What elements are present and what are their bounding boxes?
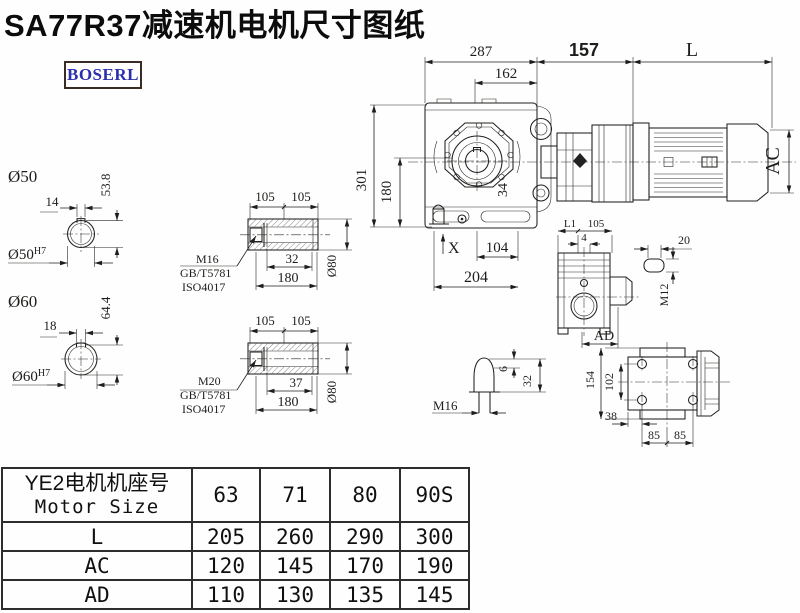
shaft60-dia-label: Ø60 [8,292,37,311]
shaft50-fit-label: Ø50H7 [8,246,46,263]
shaft50-fit-sup: H7 [34,246,46,257]
table-cell: 290 [330,522,400,551]
plug-6-label: 6 [496,366,510,372]
plug-32-label: 32 [520,375,534,387]
table-header-cn: YE2电机机座号 [3,471,191,496]
sideview-ad-label: AD [594,329,614,344]
dim-AC-label: AC [762,147,784,175]
section2-bolt-len-label: 37 [290,375,304,390]
table-col-71: 71 [260,468,330,522]
table-cell: 145 [260,551,330,580]
section2-std2-label: ISO4017 [182,402,225,416]
table-cell: 135 [330,580,400,609]
table-cell: 300 [400,522,469,551]
table-row-label: L [2,522,192,551]
dim-204-label: 204 [464,269,488,286]
sideview-l1-label: L1 [564,218,576,230]
dim-X-label: X [448,240,460,257]
shaft60-key-label: 18 [44,318,57,333]
shaft60-fit-sup: H7 [38,368,50,379]
side-view: L1 105 4 AD [556,218,640,348]
dim-104-label: 104 [486,240,509,256]
flange-38-label: 38 [605,409,617,423]
dim-287-label: 287 [470,44,493,60]
plug-detail: M16 6 32 [432,349,546,413]
table-col-63: 63 [192,468,260,522]
shaft-end-view-50: Ø50 14 53.8 Ø50H7 [8,167,123,267]
section1-dia-label: Ø80 [324,255,339,277]
table-header-cell: YE2电机机座号 Motor Size [2,468,192,522]
table-cell: 130 [260,580,330,609]
section2-len-b-label: 105 [291,313,311,328]
section1-std1-label: GB/T5781 [180,266,231,280]
hollow-shaft-section-m20: 105 105 Ø80 37 180 M20 GB/T5781 ISO4017 [180,313,352,416]
shaft60-depth-label: 64.4 [98,296,113,319]
section2-std1-label: GB/T5781 [180,388,231,402]
dim-34-label: 34 [496,183,511,197]
table-row-label: AD [2,580,192,609]
table-cell: 205 [192,522,260,551]
hollow-shaft-section-m16: 105 105 Ø80 32 180 M16 GB/T5781 ISO4017 [180,189,352,294]
table-cell: 145 [400,580,469,609]
table-cell: 190 [400,551,469,580]
plug-m16-label: M16 [433,398,458,413]
table-cell: 110 [192,580,260,609]
section1-len-b-label: 105 [291,189,311,204]
table-row-L: L 205 260 290 300 [2,522,469,551]
section2-total-label: 180 [278,395,299,410]
shaft50-depth-label: 53.8 [98,174,113,197]
section1-bolt-len-label: 32 [286,251,299,266]
shaft60-fit-label: Ø60H7 [12,368,50,385]
section2-dia-label: Ø80 [324,381,339,403]
flange-102-label: 102 [602,373,616,391]
table-header-en: Motor Size [3,496,191,519]
table-cell: 120 [192,551,260,580]
shaft50-dia-label: Ø50 [8,167,37,186]
shaft60-fit-base: Ø60 [12,369,38,385]
sideview-105-label: 105 [588,218,605,230]
table-col-80: 80 [330,468,400,522]
section1-std2-label: ISO4017 [182,280,225,294]
dim-180-label: 180 [379,181,395,204]
flange-bottom-view: 154 102 38 85 85 [583,342,732,447]
shaft50-key-label: 14 [46,194,60,209]
motor-size-table: YE2电机机座号 Motor Size 63 71 80 90S L 205 2… [1,467,470,610]
shaft-end-view-60: Ø60 18 64.4 Ø60H7 [8,292,123,389]
keydetail-m12-label: M12 [657,284,671,307]
table-header-row: YE2电机机座号 Motor Size 63 71 80 90S [2,468,469,522]
key-detail: 20 M12 [634,233,692,306]
drawing-sheet: SA77R37减速机电机尺寸图纸 BOSERL 287 162 157 L [0,0,800,613]
section1-len-a-label: 105 [255,189,275,204]
flange-85a-label: 85 [648,428,660,442]
table-row-label: AC [2,551,192,580]
dim-L-label: L [686,39,698,61]
section1-total-label: 180 [278,271,299,286]
section2-thread-label: M20 [198,374,221,388]
shaft50-fit-base: Ø50 [8,247,34,263]
table-row-AC: AC 120 145 170 190 [2,551,469,580]
sideview-4-label: 4 [581,232,587,244]
dim-157-label: 157 [569,40,599,60]
dim-162-label: 162 [495,66,518,82]
keydetail-20-label: 20 [678,233,690,247]
table-row-AD: AD 110 130 135 145 [2,580,469,609]
dim-301-label: 301 [354,169,370,192]
table-cell: 170 [330,551,400,580]
section1-thread-label: M16 [196,252,219,266]
table-col-90s: 90S [400,468,469,522]
table-cell: 260 [260,522,330,551]
flange-85b-label: 85 [674,428,686,442]
flange-154-label: 154 [583,371,597,389]
section2-len-a-label: 105 [255,313,275,328]
